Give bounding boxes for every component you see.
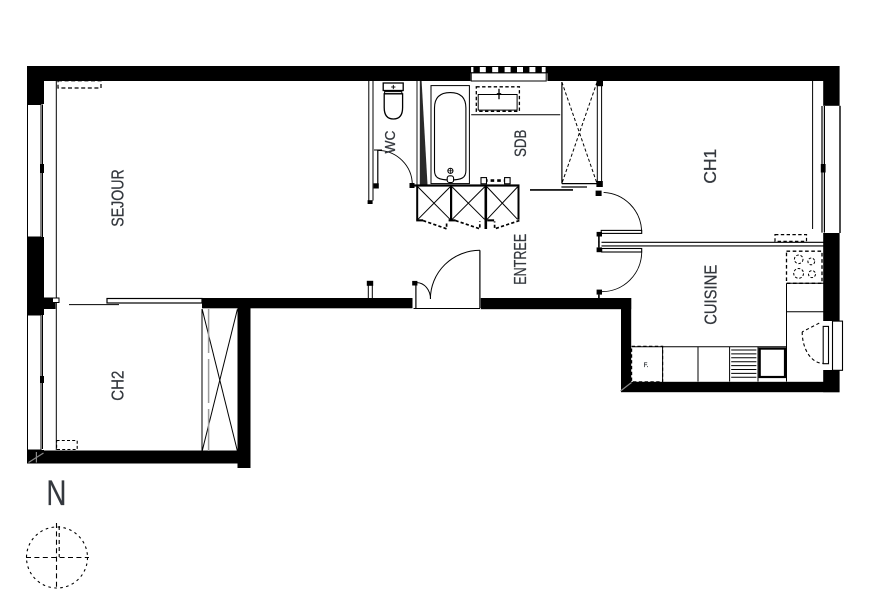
svg-text:SEJOUR: SEJOUR (107, 169, 127, 227)
svg-text:F.: F. (644, 363, 649, 369)
svg-text:CH2: CH2 (108, 371, 128, 401)
svg-text:ENTREE: ENTREE (510, 234, 530, 285)
svg-text:SDB: SDB (511, 130, 530, 157)
svg-text:CH1: CH1 (700, 149, 720, 184)
svg-text:N: N (46, 474, 66, 513)
svg-text:WC: WC (382, 130, 399, 153)
svg-text:CUISINE: CUISINE (700, 265, 720, 325)
